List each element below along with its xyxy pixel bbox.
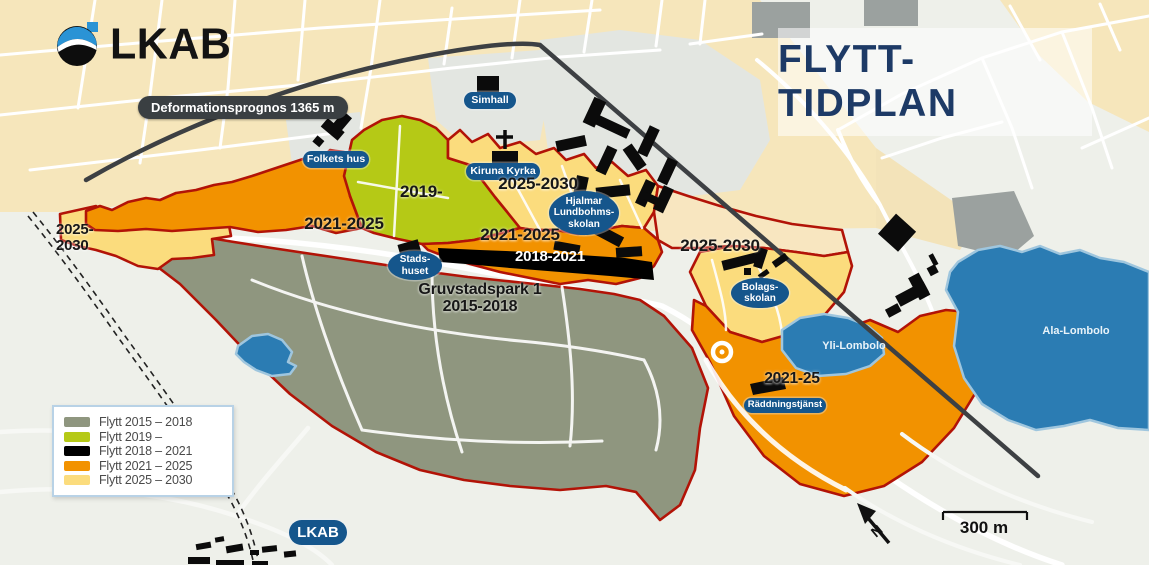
legend-label-2025-2030: Flytt 2025 – 2030 [99, 473, 192, 487]
zone-label-church-2025-2030: 2025-2030 [486, 175, 590, 193]
map-canvas: N LKAB Deformationsprognos 1365 m FLYTT-… [0, 0, 1149, 565]
legend-item-2025-2030: Flytt 2025 – 2030 [64, 473, 222, 487]
legend-swatch-2021-2025 [64, 461, 90, 471]
lake-label-ala-lombolo: Ala-Lombolo [1028, 325, 1124, 337]
legend-swatch-2018-2021 [64, 446, 90, 456]
page-title: FLYTT-TIDPLAN [778, 28, 1092, 136]
title-band: FLYTT-TIDPLAN [778, 28, 1092, 136]
scale-label: 300 m [938, 518, 1030, 538]
legend-swatch-2019 [64, 432, 90, 442]
legend-item-2018-2021: Flytt 2018 – 2021 [64, 444, 222, 458]
place-label-bolagsskolan: Bolags- skolan [731, 278, 789, 308]
deformation-prognosis-label: Deformationsprognos 1365 m [138, 96, 348, 119]
legend-item-2019: Flytt 2019 – [64, 430, 222, 444]
simhall-building [477, 76, 499, 93]
lake-label-yli-lombolo: Yli-Lombolo [812, 340, 896, 352]
lkab-logo: LKAB [54, 20, 231, 69]
legend-label-2021-2025: Flytt 2021 – 2025 [99, 459, 192, 473]
zone-label-center-2021-2025: 2021-2025 [468, 226, 572, 244]
zone-label-gruvstadspark: Gruvstadspark 1 2015-2018 [398, 282, 562, 316]
legend-swatch-2025-2030 [64, 475, 90, 485]
place-label-simhall: Simhall [464, 92, 516, 109]
place-label-raddningstjanst: Räddningstjänst [744, 398, 826, 413]
legend-label-2018-2021: Flytt 2018 – 2021 [99, 444, 192, 458]
legend: Flytt 2015 – 2018 Flytt 2019 – Flytt 201… [52, 405, 234, 497]
zone-label-east-2025-2030: 2025-2030 [668, 237, 772, 255]
zone-label-2019: 2019- [400, 183, 442, 201]
place-label-folkets-hus: Folkets hus [303, 151, 369, 168]
legend-item-2015-2018: Flytt 2015 – 2018 [64, 415, 222, 429]
lkab-logo-icon [54, 21, 101, 68]
place-label-lkab-site: LKAB [289, 520, 347, 545]
roundabout [713, 343, 731, 361]
legend-label-2019: Flytt 2019 – [99, 430, 162, 444]
place-label-stadshuset: Stads- huset [388, 251, 442, 280]
legend-item-2021-2025: Flytt 2021 – 2025 [64, 459, 222, 473]
zone-label-south-2021-25: 2021-25 [752, 371, 832, 387]
zone-label-2018-2021: 2018-2021 [498, 249, 602, 265]
zone-label-west-2021-2025: 2021-2025 [296, 215, 392, 233]
legend-swatch-2015-2018 [64, 417, 90, 427]
legend-label-2015-2018: Flytt 2015 – 2018 [99, 415, 192, 429]
zone-label-far-west: 2025- 2030 [56, 222, 93, 254]
lkab-logo-text: LKAB [110, 20, 231, 70]
